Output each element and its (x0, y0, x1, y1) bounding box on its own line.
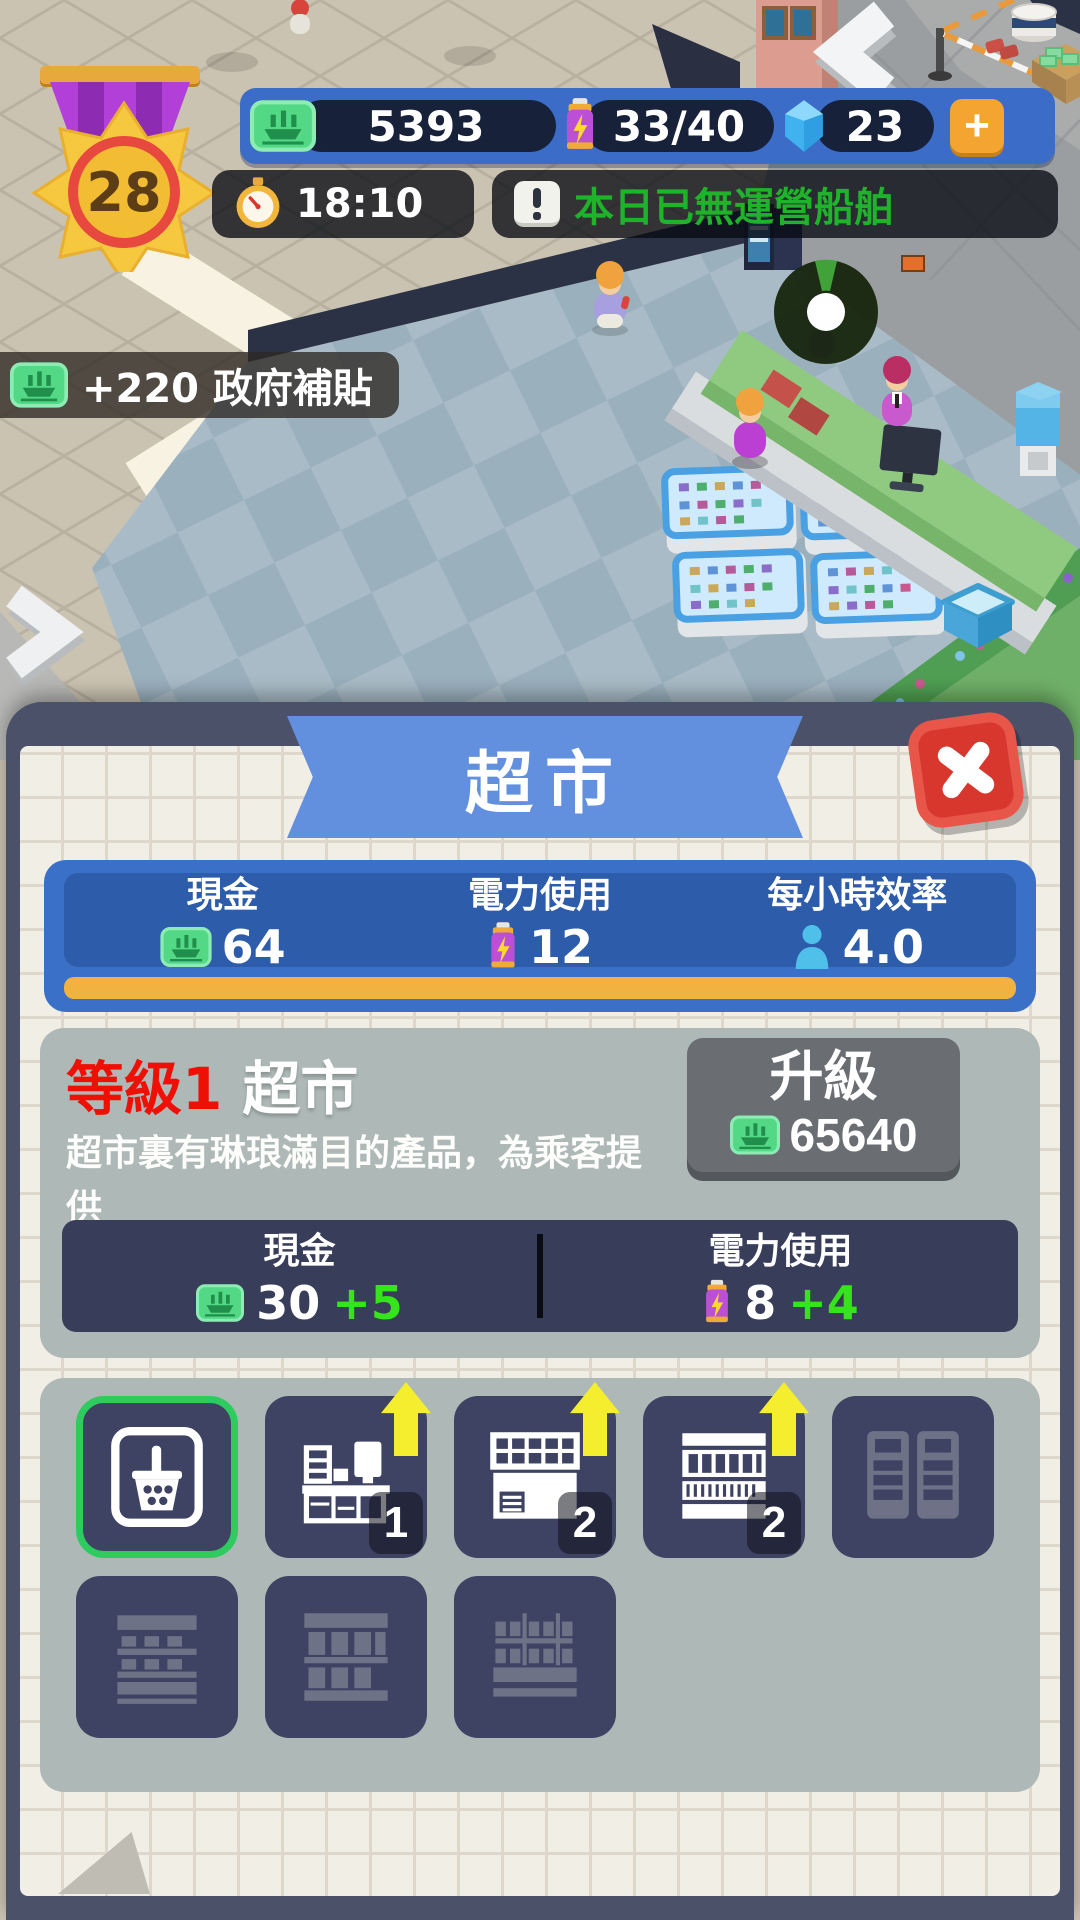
money-icon (160, 927, 212, 967)
close-button[interactable] (905, 709, 1027, 831)
water-cooler (1016, 382, 1062, 476)
stat-power: 電力使用 12 (381, 873, 698, 967)
upgrade-delta-panel: 現金 30 +5 電力使用 8 +4 (62, 1220, 1018, 1332)
upgrade-cost: 65640 (790, 1108, 918, 1162)
item-count-badge: 2 (747, 1492, 801, 1554)
level-number: 28 (68, 136, 180, 248)
upgrade-label: 升級 (770, 1048, 878, 1106)
battery-icon (562, 98, 598, 154)
shelf-columns-icon (296, 1607, 396, 1707)
level-heading: 等級1 超市 (66, 1042, 358, 1126)
item-count-badge: 2 (558, 1492, 612, 1554)
upgrade-button[interactable]: 升級 65640 (687, 1038, 960, 1172)
battery-icon (702, 1279, 732, 1327)
barrel (1012, 4, 1056, 42)
item-fridge-cabinets[interactable] (832, 1396, 994, 1558)
building-name: 超市 (242, 1042, 358, 1126)
stat-power-value: 12 (529, 920, 593, 974)
stat-cash-value: 64 (222, 920, 286, 974)
stat-efficiency: 每小時效率 4.0 (699, 873, 1016, 967)
building-stats-panel: 現金 64 電力使用 12 每小時效率 (44, 860, 1036, 1012)
gem-icon (780, 98, 828, 154)
item-shelf-columns[interactable] (265, 1576, 427, 1738)
stat-efficiency-value: 4.0 (843, 920, 925, 974)
money-icon (10, 362, 68, 408)
level-card: 等級1 超市 超市裏有琳琅滿目的產品，為乘客提供 良好的購物體驗。 升級 656… (40, 1028, 1040, 1358)
shelf-blocks-icon (485, 1607, 585, 1707)
battery-icon (487, 922, 519, 972)
stat-cash-label: 現金 (187, 866, 259, 918)
stat-power-label: 電力使用 (468, 866, 612, 918)
money-icon (196, 1284, 244, 1322)
cash-delta: +5 (332, 1276, 403, 1330)
basket-icon (107, 1427, 207, 1527)
delta-cash: 現金 30 +5 (62, 1220, 537, 1332)
person-icon (791, 924, 833, 970)
passerby (290, 0, 310, 34)
clock-icon (234, 177, 282, 231)
item-shelf-rows[interactable] (76, 1576, 238, 1738)
progress-bar (64, 977, 1016, 999)
fridge-icon (863, 1427, 963, 1527)
alert-chip[interactable]: 本日已無運營船舶 (492, 170, 1058, 238)
time-chip[interactable]: 18:10 (212, 170, 474, 238)
shelf-rows-icon (107, 1607, 207, 1707)
money-icon (250, 100, 316, 152)
delta-power: 電力使用 8 +4 (543, 1220, 1018, 1332)
panel-title-banner: 超市 (287, 716, 803, 838)
level-label: 等級1 (66, 1042, 222, 1126)
time-value: 18:10 (296, 181, 423, 227)
item-shelf-blocks[interactable] (454, 1576, 616, 1738)
item-checkout-counter[interactable]: 1 (265, 1396, 427, 1558)
paper-fold (58, 1832, 150, 1894)
task-progress-ring (774, 260, 878, 364)
income-popup: +220 政府補貼 (0, 352, 399, 418)
energy-amount: 33/40 (584, 100, 774, 152)
alert-text: 本日已無運營船舶 (574, 175, 894, 233)
item-stock-shelf[interactable]: 2 (643, 1396, 805, 1558)
add-gems-button[interactable]: + (950, 99, 1004, 153)
alert-icon (514, 181, 560, 227)
furniture-grid: 1 (40, 1378, 1040, 1792)
level-badge: 28 (28, 56, 220, 272)
item-display-shelf[interactable]: 2 (454, 1396, 616, 1558)
money-amount: 5393 (296, 100, 556, 152)
item-basket[interactable] (76, 1396, 238, 1558)
panel-title: 超市 (465, 728, 625, 827)
power-delta: +4 (788, 1276, 859, 1330)
gem-amount: 23 (816, 100, 934, 152)
game-screen: 28 5393 33/40 23 + 18:10 本日已無運營船舶 +220 政… (0, 0, 1080, 1920)
stat-cash: 現金 64 (64, 873, 381, 967)
money-icon (730, 1115, 780, 1155)
income-popup-text: +220 政府補貼 (82, 356, 373, 414)
panel-paper: 現金 64 電力使用 12 每小時效率 (20, 746, 1060, 1896)
item-count-badge: 1 (369, 1492, 423, 1554)
resource-bar: 5393 33/40 23 + (240, 88, 1055, 164)
supermarket-panel: 現金 64 電力使用 12 每小時效率 (6, 702, 1074, 1920)
stat-efficiency-label: 每小時效率 (767, 866, 947, 918)
